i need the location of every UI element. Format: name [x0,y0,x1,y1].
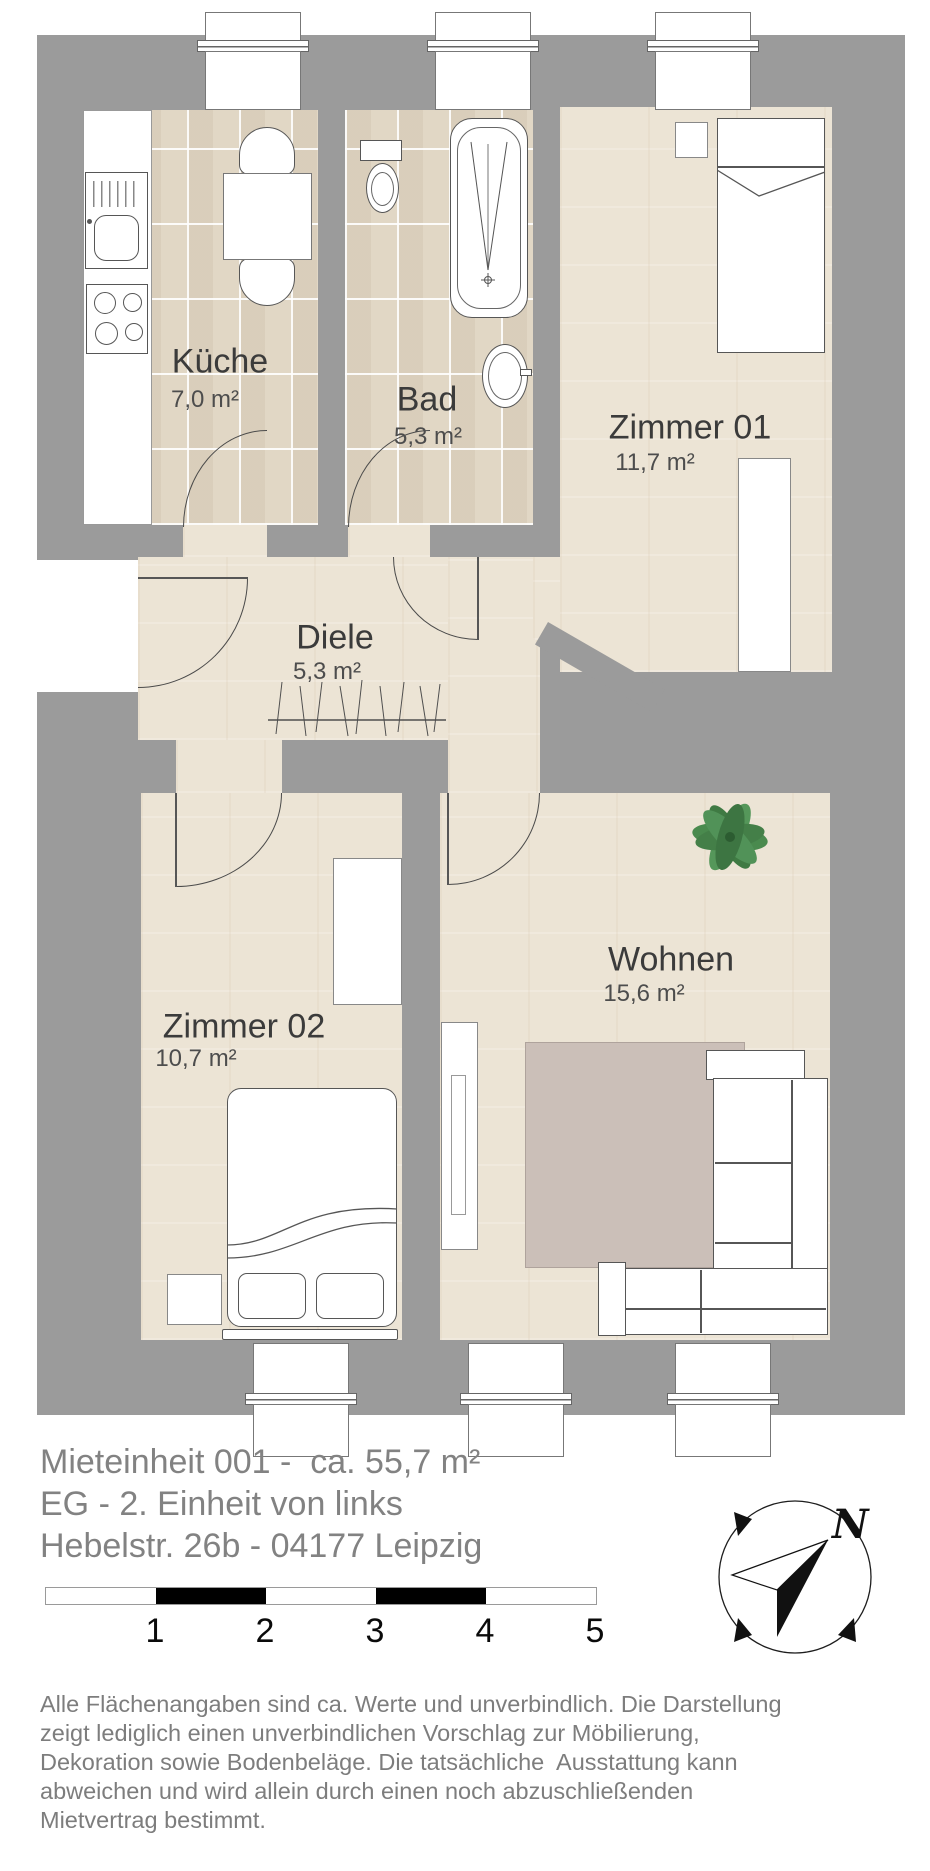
toilet-bowl-inner [371,172,394,206]
stove-burner [123,293,142,312]
window-outer-sill [468,1404,564,1457]
title-address: Hebelstr. 26b - 04177 Leipzig [40,1525,482,1567]
stove-burner [94,292,116,314]
disclaimer-line: Mietvertrag bestimmt. [40,1806,782,1835]
disclaimer-line: Dekoration sowie Bodenbeläge. Die tatsäc… [40,1748,782,1777]
sofa-seam [715,1242,791,1244]
window [647,12,759,110]
compass-north-label: N [830,1501,870,1548]
bad-area: 5,3 m² [394,423,462,451]
bed-single [717,118,825,353]
bed-blanket-curve [227,1195,397,1280]
scale-segment [376,1588,486,1604]
entrance-opening [37,560,138,692]
zimmer02-door-threshold [176,740,282,793]
window [197,12,309,110]
diele-label: Diele [296,619,373,658]
zimmer02-area: 10,7 m² [155,1045,236,1073]
window-outer-sill [435,12,531,41]
sink-faucet [87,219,92,224]
washbasin-inner [488,352,522,400]
kueche-door-threshold [183,525,267,557]
sofa-bottom-section [612,1268,828,1335]
window [460,1343,572,1457]
sofa-armrest [598,1262,626,1336]
scale-label-5: 5 [586,1612,605,1651]
scale-segment [486,1588,596,1604]
kueche-area: 7,0 m² [171,386,239,414]
zimmer01-label: Zimmer 01 [609,409,771,448]
bed-blanket-fold [717,162,825,202]
sofa-seam [614,1308,826,1310]
zimmer02-door-leaf [175,793,177,887]
scale-segment [46,1588,156,1604]
scale-label-4: 4 [476,1612,495,1651]
diele-area: 5,3 m² [293,658,361,686]
sideboard-inner [451,1075,466,1215]
disclaimer-line: abweichen und wird allein durch einen no… [40,1777,782,1806]
scale-label-2: 2 [256,1612,275,1651]
plant [658,785,798,893]
stove-burner [125,323,143,341]
wohnen-area: 15,6 m² [603,980,684,1008]
window-inner-sill [675,1343,771,1394]
bad-label: Bad [397,381,458,420]
bed-footboard [222,1329,398,1340]
bad-door-threshold [348,525,430,557]
compass-rose: N [706,1492,906,1667]
title-unit: Mieteinheit 001 - ca. 55,7 m² [40,1441,482,1483]
scale-label-3: 3 [366,1612,385,1651]
sink-basin [94,215,139,261]
sofa-back-top [706,1050,805,1080]
window [427,12,539,110]
window-inner-sill [468,1343,564,1394]
scale-segment [266,1588,376,1604]
scale-bar [45,1587,597,1605]
disclaimer: Alle Flächenangaben sind ca. Werte und u… [40,1690,782,1835]
zimmer01-area: 11,7 m² [615,449,695,477]
pillow [316,1273,384,1319]
wohnen-door-leaf [447,793,449,885]
window-inner-sill [205,51,301,110]
kueche-label: Küche [172,343,268,382]
disclaimer-line: Alle Flächenangaben sind ca. Werte und u… [40,1690,782,1719]
sink-drainboard [93,181,141,207]
disclaimer-line: zeigt lediglich einen unverbindlichen Vo… [40,1719,782,1748]
title-block: Mieteinheit 001 - ca. 55,7 m² EG - 2. Ei… [40,1441,482,1567]
zimmer02-label: Zimmer 02 [163,1008,325,1047]
dining-table [223,173,312,260]
nightstand [167,1274,222,1325]
washbasin-tap [520,369,532,376]
window-inner-sill [655,51,751,110]
scale-segment [156,1588,266,1604]
entrance-door-leaf [138,577,248,579]
floor-plan-page: Küche 7,0 m² Bad 5,3 m² Zimmer 01 11,7 m… [0,0,930,1871]
window-inner-sill [435,51,531,110]
zimmer01-door-leaf [477,557,479,640]
window [245,1343,357,1457]
bathtub-drain-detail [455,130,523,308]
title-floor: EG - 2. Einheit von links [40,1483,482,1525]
wardrobe [333,858,402,1005]
sofa-seam [700,1270,702,1333]
window [667,1343,779,1457]
stove-burner [95,322,118,345]
window-outer-sill [655,12,751,41]
wohnen-label: Wohnen [608,941,734,980]
wardrobe [738,458,791,672]
nightstand [675,122,708,158]
window-inner-sill [253,1343,349,1394]
scale-label-1: 1 [146,1612,165,1651]
pillow [238,1273,306,1319]
toilet-tank [360,140,402,161]
kitchen-sink-unit [85,172,148,269]
sofa-seam [715,1162,791,1164]
dining-chair [239,127,295,175]
window-outer-sill [205,12,301,41]
window-outer-sill [675,1404,771,1457]
